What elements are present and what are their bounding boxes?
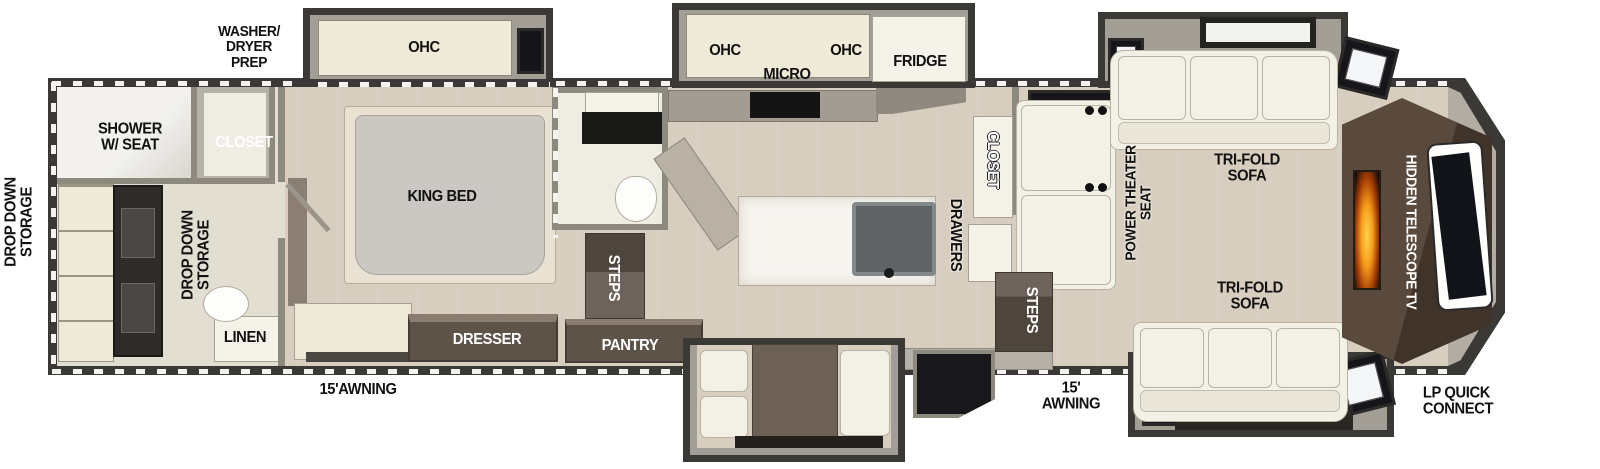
cupholder-icon-3 bbox=[1085, 183, 1094, 192]
awning-right-label: 15' AWNING bbox=[1042, 381, 1100, 414]
sofa-bottom-cushion-3 bbox=[1276, 328, 1340, 388]
sofa-top-cushion-3 bbox=[1262, 56, 1330, 120]
linen-label: LINEN bbox=[224, 330, 266, 346]
tri-fold-sofa-bottom-label: TRI-FOLD SOFA bbox=[1217, 281, 1283, 314]
sofa-bottom-seat-edge bbox=[1140, 390, 1340, 412]
dresser-label: DRESSER bbox=[453, 332, 522, 348]
sofa-top-cushion-2 bbox=[1190, 56, 1258, 120]
left-wall-ticks bbox=[51, 82, 56, 370]
bath-bedroom-wall-bottom bbox=[278, 238, 285, 366]
power-theater-seat-label: POWER THEATER SEAT bbox=[1124, 145, 1155, 260]
bath-sink-2 bbox=[121, 283, 155, 333]
shower-w-seat-label: SHOWER W/ SEAT bbox=[98, 122, 162, 155]
sofa-bottom-cushion-2 bbox=[1208, 328, 1272, 388]
lp-quick-connect-label: LP QUICK CONNECT bbox=[1423, 386, 1493, 419]
island-faucet-icon bbox=[884, 268, 894, 278]
dinette-table bbox=[752, 344, 838, 442]
toilet-half-bath-icon bbox=[615, 176, 657, 222]
island-sink-icon bbox=[852, 202, 936, 276]
sofa-bottom-cushion-1 bbox=[1140, 328, 1204, 388]
ohc-kitchen-right-label: OHC bbox=[830, 43, 862, 59]
cupholder-icon-2 bbox=[1098, 106, 1107, 115]
bedroom-rug bbox=[306, 352, 412, 362]
king-bed-label: KING BED bbox=[407, 189, 476, 205]
entry-porch-step bbox=[913, 350, 995, 418]
cupholder-icon-4 bbox=[1098, 183, 1107, 192]
cupholder-icon-1 bbox=[1085, 106, 1094, 115]
dinette-mat bbox=[735, 436, 883, 448]
cooktop bbox=[750, 92, 820, 118]
dinette-chair-2 bbox=[700, 396, 748, 438]
half-bath-counter bbox=[582, 112, 662, 144]
pantry-label: PANTRY bbox=[602, 338, 659, 354]
washer-dryer-prep-label: WASHER/ DRYER PREP bbox=[218, 24, 280, 70]
theater-seat-cushion-1 bbox=[1021, 105, 1111, 191]
ohc-bedroom-label: OHC bbox=[408, 40, 440, 56]
drop-down-storage-left-label: DROP DOWN STORAGE bbox=[4, 177, 37, 267]
tri-fold-sofa-top-label: TRI-FOLD SOFA bbox=[1214, 153, 1280, 186]
closet-kitchen-label: CLOSET bbox=[984, 131, 1000, 189]
bath-shelf-unit bbox=[58, 184, 114, 362]
bath-sink-1 bbox=[121, 208, 155, 258]
fridge-box bbox=[872, 16, 966, 82]
bedroom-slide-window bbox=[517, 28, 544, 74]
skylight bbox=[1200, 17, 1316, 48]
sofa-top-seat-edge bbox=[1118, 122, 1330, 144]
steps-mid-label: STEPS bbox=[605, 255, 621, 301]
awning-left-label: 15'AWNING bbox=[319, 382, 396, 398]
drop-down-storage-bath-label: DROP DOWN STORAGE bbox=[181, 210, 214, 300]
fridge-label: FRIDGE bbox=[893, 54, 946, 70]
fireplace-flame-icon bbox=[1353, 170, 1381, 290]
drawers-label: DRAWERS bbox=[947, 199, 963, 272]
hidden-telescope-tv-label: HIDDEN TELESCOPE TV bbox=[1403, 155, 1418, 310]
bedroom-slide-floor-dashes bbox=[318, 82, 550, 87]
steps-entry-label: STEPS bbox=[1023, 287, 1039, 333]
dinette-chair-1 bbox=[700, 350, 748, 392]
dinette-bench bbox=[840, 350, 890, 436]
bedroom-wall-dashes bbox=[553, 88, 558, 238]
micro-label: MICRO bbox=[763, 67, 810, 83]
closet-front-label: CLOSET bbox=[215, 135, 273, 151]
bath-bedroom-wall-top bbox=[278, 87, 285, 182]
rv-floorplan: WASHER/ DRYER PREP OHC SHOWER W/ SEAT CL… bbox=[0, 0, 1600, 469]
sofa-top-cushion-1 bbox=[1118, 56, 1186, 120]
ohc-kitchen-left-label: OHC bbox=[709, 43, 741, 59]
